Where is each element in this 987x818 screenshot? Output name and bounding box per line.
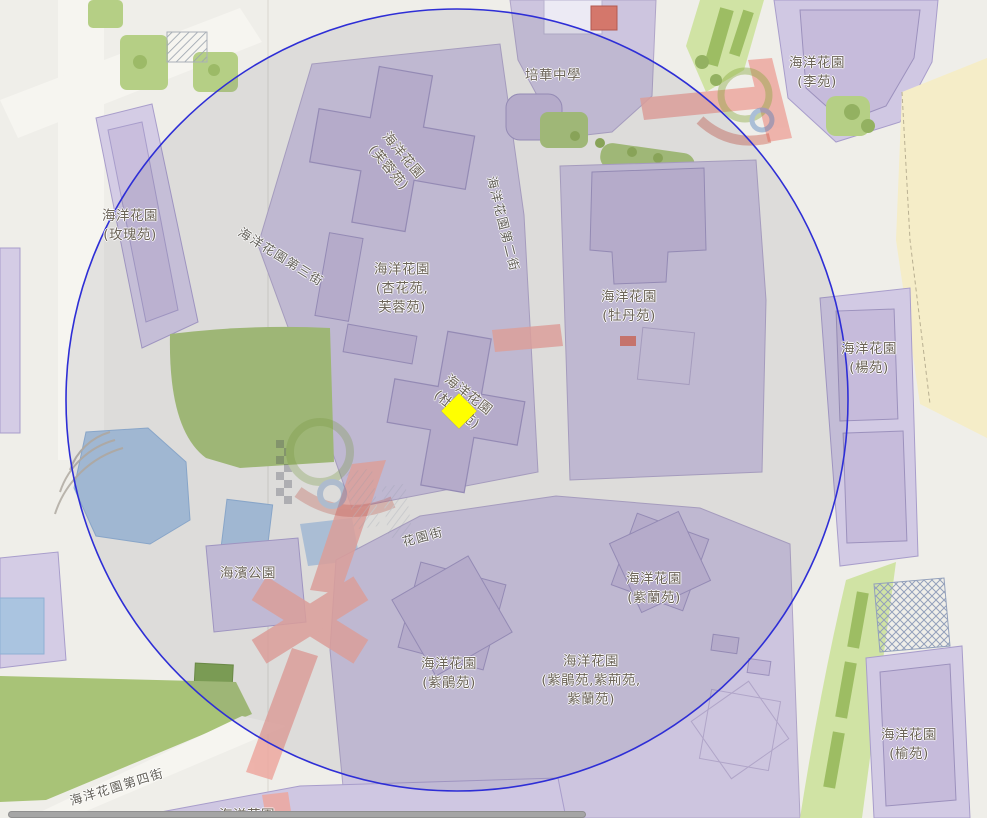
label-elm-court: 海洋花園 (榆苑) [881, 726, 937, 764]
horizontal-scrollbar-thumb[interactable] [8, 811, 586, 818]
label-apricot-hibiscus: 海洋花園 (杏花苑, 芙蓉苑) [374, 260, 430, 317]
pool-bottomleft [0, 598, 44, 654]
left-edge-building [0, 248, 20, 433]
label-lee-court: 海洋花園 (李苑) [789, 54, 845, 92]
label-waterfront-park: 海濱公園 [220, 564, 276, 583]
hatched-construction-area [167, 32, 207, 62]
label-purple-azalea-court: 海洋花園 (紫鵑苑) [421, 655, 477, 693]
label-peony-court: 海洋花園 (牡丹苑) [601, 288, 657, 326]
label-violet-orchid-court: 海洋花園 (紫蘭苑) [626, 570, 682, 608]
map-canvas[interactable]: 海洋花園 (李苑) 培華中學 海洋花園 (芙蓉苑) 海洋花園 (玫瑰苑) 海洋花… [0, 0, 987, 818]
label-purple-courts-group: 海洋花園 (紫鵑苑,紫荊苑, 紫蘭苑) [541, 652, 640, 709]
label-school: 培華中學 [525, 66, 581, 85]
map-base-layer [0, 0, 987, 818]
label-willow-court: 海洋花園 (楊苑) [841, 340, 897, 378]
red-building [591, 6, 617, 30]
crosshatched-lot [874, 578, 950, 652]
label-rose-court: 海洋花園 (玫瑰苑) [102, 207, 158, 245]
